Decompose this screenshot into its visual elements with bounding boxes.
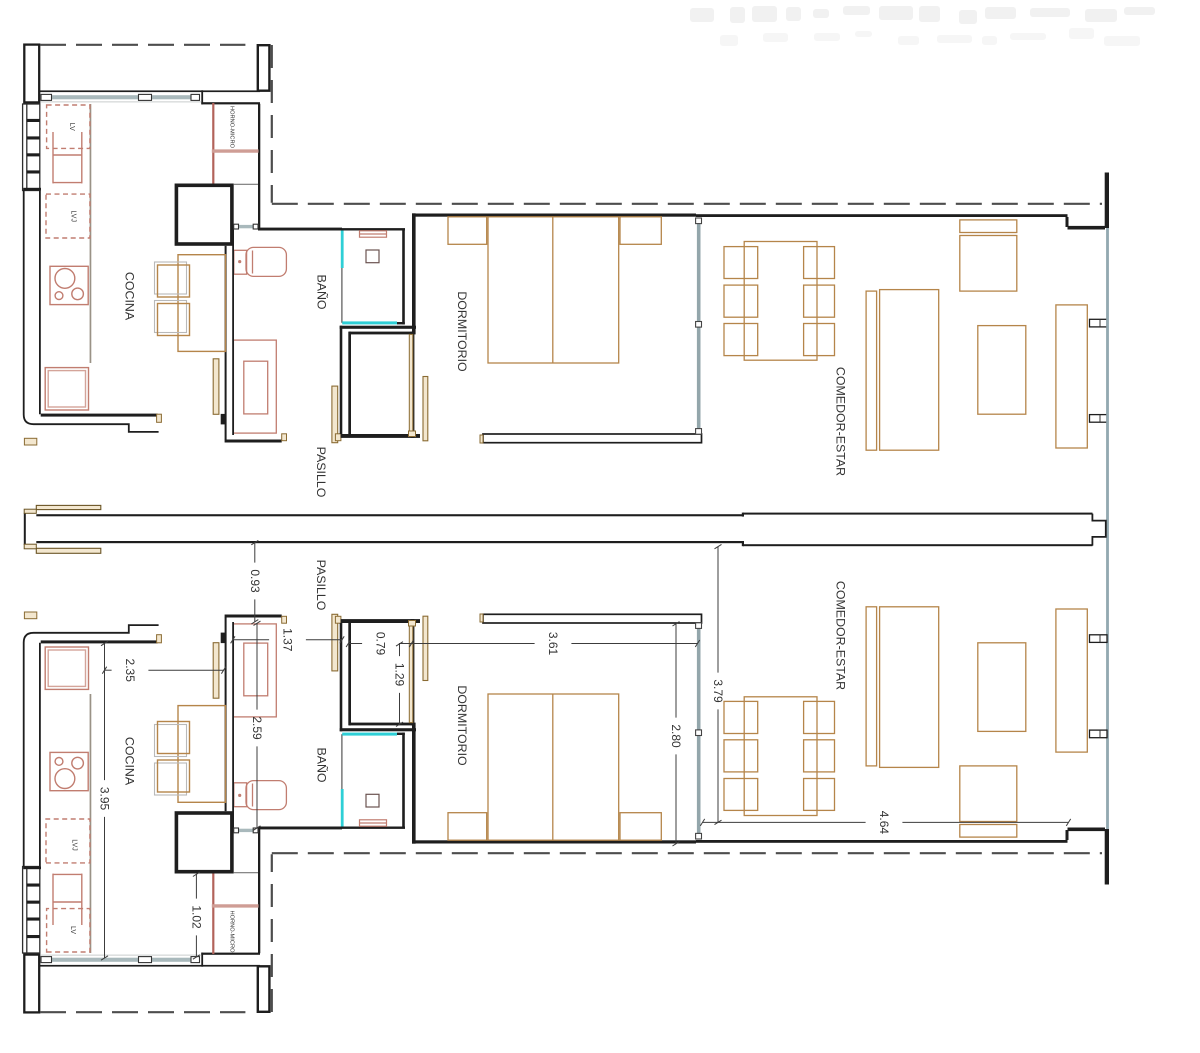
- svg-text:COMEDOR-ESTAR: COMEDOR-ESTAR: [834, 581, 848, 690]
- svg-text:3.61: 3.61: [546, 632, 560, 656]
- svg-text:3.95: 3.95: [98, 787, 112, 811]
- svg-text:4.64: 4.64: [877, 811, 891, 835]
- svg-text:1.29: 1.29: [393, 663, 407, 687]
- svg-text:0.79: 0.79: [374, 632, 388, 656]
- svg-text:BAÑO: BAÑO: [315, 747, 329, 782]
- svg-text:0.93: 0.93: [248, 569, 262, 593]
- svg-text:LVJ: LVJ: [69, 210, 76, 222]
- svg-text:1.37: 1.37: [281, 628, 295, 652]
- svg-text:DORMITORIO: DORMITORIO: [455, 685, 469, 766]
- svg-text:COCINA: COCINA: [123, 737, 137, 786]
- svg-text:2.80: 2.80: [669, 724, 683, 748]
- svg-text:3.79: 3.79: [711, 679, 725, 703]
- svg-text:LV: LV: [68, 123, 75, 131]
- svg-text:PASILLO: PASILLO: [314, 560, 328, 611]
- svg-text:HORNO-MICRO: HORNO-MICRO: [229, 910, 235, 953]
- svg-text:COCINA: COCINA: [123, 272, 137, 321]
- svg-text:HORNO-MICRO: HORNO-MICRO: [229, 106, 235, 149]
- svg-text:1.02: 1.02: [189, 905, 203, 929]
- svg-text:COMEDOR-ESTAR: COMEDOR-ESTAR: [834, 367, 848, 476]
- svg-text:LVJ: LVJ: [70, 839, 77, 851]
- svg-text:DORMITORIO: DORMITORIO: [455, 291, 469, 372]
- svg-text:PASILLO: PASILLO: [314, 447, 328, 498]
- svg-text:BAÑO: BAÑO: [315, 274, 329, 309]
- svg-text:LV: LV: [69, 926, 76, 934]
- svg-text:2.59: 2.59: [250, 716, 264, 740]
- svg-text:2.35: 2.35: [123, 659, 137, 683]
